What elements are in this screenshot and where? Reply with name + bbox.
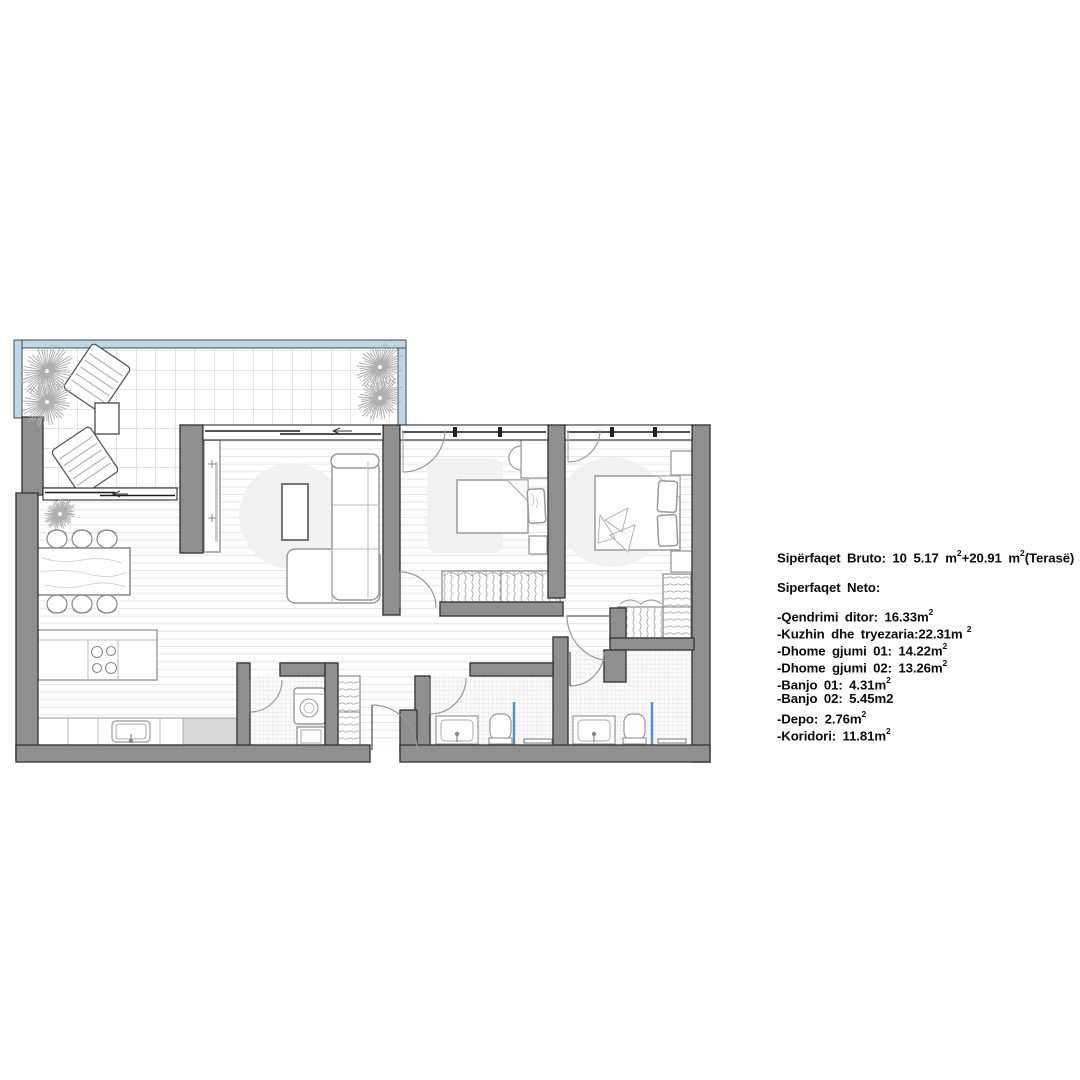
hall-closet <box>338 676 360 748</box>
tv-unit <box>204 440 220 552</box>
area-line-room-kuzhin: -Kuzhin dhe tryezaria:22.31m 2 <box>777 622 1077 639</box>
coffee-table <box>282 484 308 540</box>
area-annotation: Sipërfaqet Bruto: 10 5.17 m2+20.91 m2(Te… <box>777 546 1077 741</box>
nightstand <box>671 551 692 572</box>
wardrobe <box>663 574 691 640</box>
towel-rail <box>524 739 552 743</box>
dining-area <box>37 530 130 613</box>
floor-plan <box>0 0 1080 1080</box>
area-line-room-koridori: -Koridori: 11.81m2 <box>777 724 1077 741</box>
toilet <box>623 714 646 744</box>
terrace-table <box>95 403 119 434</box>
laundry-sink <box>297 727 325 746</box>
washing-machine <box>294 688 325 724</box>
floor-plan-page: Sipërfaqet Bruto: 10 5.17 m2+20.91 m2(Te… <box>0 0 1080 1080</box>
bedroom1-window <box>400 425 548 440</box>
bathroom-sink <box>573 716 615 744</box>
towel-rail <box>658 739 686 743</box>
nightstand <box>529 536 547 554</box>
area-line-room-banjo-01: -Banjo 01: 4.31m2 <box>777 673 1077 690</box>
area-line-room-banjo-02: -Banjo 02: 5.45m2 <box>777 690 1077 707</box>
area-line-room-depo: -Depo: 2.76m2 <box>777 707 1077 724</box>
kitchen-counter <box>38 718 237 745</box>
area-line-room-dhome-02: -Dhome gjumi 02: 13.26m2 <box>777 656 1077 673</box>
nightstand <box>671 451 692 475</box>
bed-double <box>595 476 680 552</box>
storage-room <box>294 688 325 746</box>
area-line-room-dhome-01: -Dhome gjumi 01: 14.22m2 <box>777 639 1077 656</box>
desk <box>521 436 548 478</box>
area-line-room-qendrimi: -Qendrimi ditor: 16.33m2 <box>777 605 1077 622</box>
kitchen-sink <box>112 721 150 743</box>
bedroom2-window <box>565 425 692 440</box>
area-line-net-heading: Siperfaqet Neto: <box>777 579 1077 596</box>
bathroom-sink <box>436 716 478 744</box>
dining-table <box>37 548 130 595</box>
toilet <box>489 714 512 744</box>
kitchen-island <box>38 630 157 680</box>
wardrobe <box>442 571 560 602</box>
living-room-window <box>203 425 383 440</box>
area-line-gross-area: Sipërfaqet Bruto: 10 5.17 m2+20.91 m2(Te… <box>777 546 1077 563</box>
